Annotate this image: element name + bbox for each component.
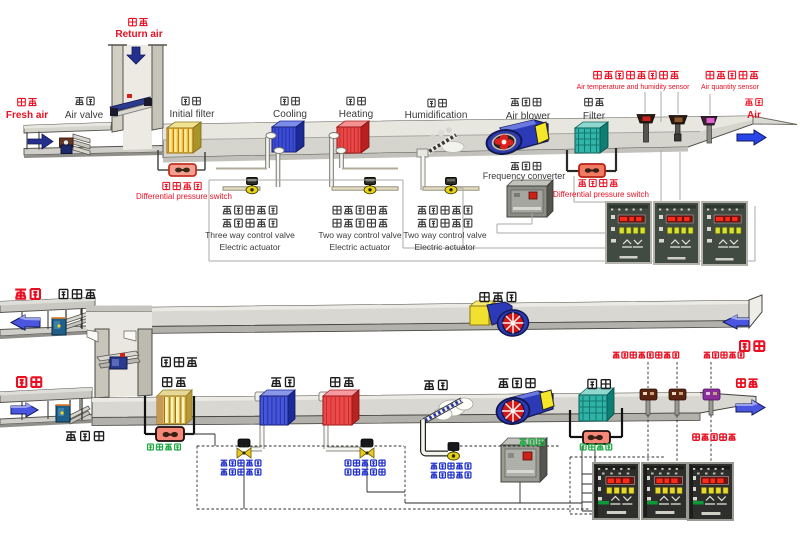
svg-text:Air: Air	[747, 110, 761, 121]
svg-text:Heating: Heating	[339, 109, 373, 120]
svg-text:Electric actuator: Electric actuator	[330, 242, 391, 252]
svg-text:Filter: Filter	[583, 111, 606, 122]
svg-text:Air temperature and humidity s: Air temperature and humidity sensor	[577, 84, 690, 91]
svg-text:Humidification: Humidification	[405, 110, 468, 121]
svg-text:Air quantity sensor: Air quantity sensor	[701, 84, 760, 91]
svg-text:Differential pressure switch: Differential pressure switch	[553, 190, 649, 199]
svg-text:Differential pressure switch: Differential pressure switch	[136, 192, 232, 201]
svg-text:Cooling: Cooling	[273, 109, 307, 120]
svg-text:Air valve: Air valve	[65, 110, 104, 121]
svg-text:Electric actuator: Electric actuator	[415, 242, 476, 252]
svg-text:Air blower: Air blower	[506, 111, 551, 122]
svg-text:Fresh air: Fresh air	[6, 110, 48, 121]
svg-text:Two way control valve: Two way control valve	[318, 230, 401, 240]
svg-text:Return air: Return air	[115, 29, 162, 40]
svg-text:Initial filter: Initial filter	[169, 109, 215, 120]
svg-text:Two way control valve: Two way control valve	[403, 230, 486, 240]
svg-text:Electric actuator: Electric actuator	[220, 242, 281, 252]
svg-text:Frequency converter: Frequency converter	[483, 171, 566, 181]
svg-text:Three way control valve: Three way control valve	[205, 230, 295, 240]
